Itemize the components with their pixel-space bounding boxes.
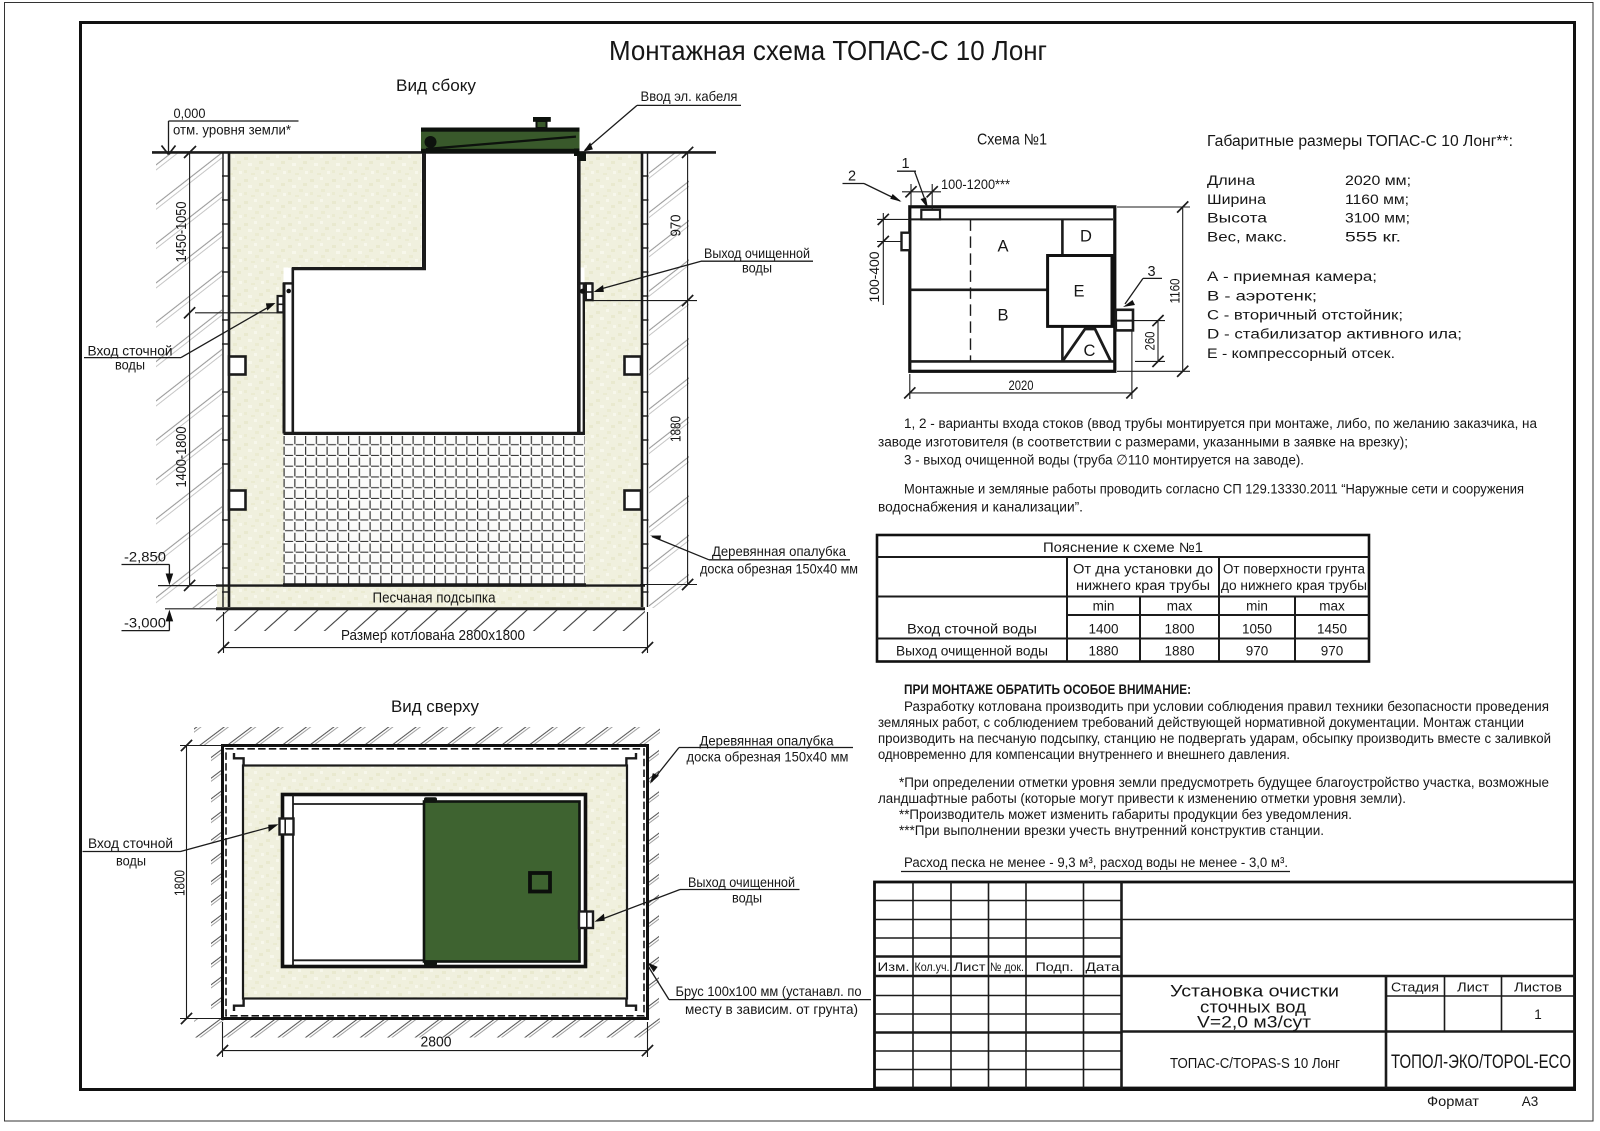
svg-text:доска обрезная 150х40 мм: доска обрезная 150х40 мм <box>687 749 849 765</box>
svg-text:В - аэротенк;: В - аэротенк; <box>1207 289 1317 305</box>
svg-text:1400-1800: 1400-1800 <box>174 427 190 488</box>
svg-text:Формат: Формат <box>1427 1094 1479 1109</box>
svg-text:E: E <box>1073 283 1084 301</box>
svg-text:min: min <box>1246 599 1268 614</box>
svg-text:2020: 2020 <box>1009 377 1034 393</box>
svg-text:ПРИ МОНТАЖЕ ОБРАТИТЬ ОСОБОЕ ВН: ПРИ МОНТАЖЕ ОБРАТИТЬ ОСОБОЕ ВНИМАНИЕ: <box>904 682 1191 698</box>
svg-text:воды: воды <box>116 853 146 869</box>
svg-text:0,000: 0,000 <box>174 106 206 121</box>
svg-text:Вид сбоку: Вид сбоку <box>396 77 477 95</box>
svg-text:Листов: Листов <box>1514 981 1562 995</box>
svg-text:водоснабжения и канализации”.: водоснабжения и канализации”. <box>878 500 1083 516</box>
svg-text:Ширина: Ширина <box>1207 192 1266 208</box>
svg-text:Расход песка не менее - 9,3 м³: Расход песка не менее - 9,3 м³, расход в… <box>904 855 1288 871</box>
svg-text:1, 2 - варианты входа стоков: 1, 2 - варианты входа стоков (ввод трубы… <box>904 416 1537 432</box>
svg-text:От поверхности грунта: От поверхности грунта <box>1223 562 1365 577</box>
svg-text:1160 мм;: 1160 мм; <box>1345 192 1409 208</box>
svg-text:2020 мм;: 2020 мм; <box>1345 173 1411 189</box>
svg-text:заводе изготовителя (в соответ: заводе изготовителя (в соответствии с ра… <box>878 435 1408 451</box>
svg-text:Деревянная опалубка: Деревянная опалубка <box>700 733 834 749</box>
svg-text:Лист: Лист <box>954 960 987 974</box>
svg-text:№ док.: № док. <box>990 960 1024 974</box>
svg-text:Изм.: Изм. <box>878 960 910 974</box>
svg-text:Пояснение к схеме №1: Пояснение к схеме №1 <box>1043 540 1203 555</box>
svg-text:1050: 1050 <box>1242 622 1272 637</box>
svg-text:1160: 1160 <box>1168 279 1183 304</box>
svg-text:max: max <box>1319 599 1345 614</box>
svg-text:970: 970 <box>1246 644 1269 659</box>
svg-text:Габаритные размеры ТОПАС-С 10: Габаритные размеры ТОПАС-С 10 Лонг**: <box>1207 133 1513 150</box>
svg-text:D: D <box>1080 228 1092 246</box>
svg-text:воды: воды <box>732 890 762 906</box>
svg-text:Ввод эл. кабеля: Ввод эл. кабеля <box>641 88 738 104</box>
svg-text:Лист: Лист <box>1457 981 1489 995</box>
svg-text:Вход сточной воды: Вход сточной воды <box>907 622 1037 637</box>
svg-text:Высота: Высота <box>1207 211 1267 227</box>
svg-text:100-1200***: 100-1200*** <box>941 177 1011 192</box>
svg-text:E - компрессорный отсек.: E - компрессорный отсек. <box>1207 346 1395 362</box>
svg-text:Песчаная подсыпка: Песчаная подсыпка <box>373 591 497 607</box>
svg-text:до нижнего края трубы: до нижнего края трубы <box>1221 578 1367 593</box>
svg-text:1800: 1800 <box>1164 622 1194 637</box>
svg-text:***При выполнении врезки учест: ***При выполнении врезки учесть внутренн… <box>899 823 1324 839</box>
svg-text:Монтажные и земляные работы пр: Монтажные и земляные работы проводить со… <box>904 482 1524 498</box>
svg-text:100-400: 100-400 <box>867 252 882 303</box>
svg-text:1880: 1880 <box>1088 644 1118 659</box>
svg-text:А - приемная камера;: А - приемная камера; <box>1207 269 1377 285</box>
svg-text:1450: 1450 <box>1317 622 1347 637</box>
svg-text:одновременно для компенсации в: одновременно для компенсации внутреннего… <box>878 747 1290 763</box>
svg-text:*При определении отметки уровн: *При определении отметки уровня земли пр… <box>899 775 1549 791</box>
svg-text:Вес, макс.: Вес, макс. <box>1207 230 1287 246</box>
svg-text:260: 260 <box>1143 332 1158 351</box>
svg-text:3: 3 <box>1147 264 1155 280</box>
svg-text:A: A <box>997 238 1008 256</box>
svg-text:max: max <box>1167 599 1193 614</box>
svg-text:Выход очищенной воды: Выход очищенной воды <box>896 644 1048 659</box>
svg-text:1: 1 <box>1534 1007 1542 1022</box>
svg-text:-3,000: -3,000 <box>124 616 166 631</box>
svg-text:воды: воды <box>115 357 145 373</box>
svg-text:производить на песчаную подсып: производить на песчаную подсыпку, станци… <box>878 731 1551 747</box>
svg-text:1: 1 <box>901 156 909 172</box>
svg-text:ландшафтные работы (которые мо: ландшафтные работы (которые могут привес… <box>878 791 1406 807</box>
svg-text:2800: 2800 <box>421 1034 452 1051</box>
svg-text:земляных работ, с соблюдением: земляных работ, с соблюдением требований… <box>878 715 1524 731</box>
svg-text:Брус 100х100 мм (устанавл. по: Брус 100х100 мм (устанавл. по <box>676 983 862 999</box>
svg-text:**Производитель может изменить: **Производитель может изменить габариты … <box>899 807 1352 823</box>
svg-text:1880: 1880 <box>669 416 685 442</box>
svg-text:С - вторичный отстойник;: С - вторичный отстойник; <box>1207 308 1403 324</box>
svg-text:Длина: Длина <box>1207 173 1255 189</box>
svg-text:min: min <box>1093 599 1115 614</box>
svg-text:1450-1050: 1450-1050 <box>174 202 190 263</box>
svg-text:970: 970 <box>1321 644 1344 659</box>
svg-text:Дата: Дата <box>1086 960 1120 974</box>
svg-text:Стадия: Стадия <box>1391 981 1439 995</box>
svg-text:970: 970 <box>669 215 685 237</box>
svg-text:V=2,0 м3/сут: V=2,0 м3/сут <box>1197 1014 1312 1032</box>
svg-text:1800: 1800 <box>172 870 189 896</box>
svg-text:нижнего края трубы: нижнего края трубы <box>1076 578 1210 593</box>
svg-text:Подп.: Подп. <box>1036 960 1074 974</box>
svg-text:Деревянная опалубка: Деревянная опалубка <box>712 543 846 559</box>
svg-text:Вход сточной: Вход сточной <box>88 835 173 851</box>
svg-text:ТОПАС-С/TOPAS-S 10 Лонг: ТОПАС-С/TOPAS-S 10 Лонг <box>1170 1056 1340 1072</box>
svg-text:воды: воды <box>742 260 772 276</box>
svg-text:1880: 1880 <box>1164 644 1194 659</box>
svg-text:От дна установки до: От дна установки до <box>1073 562 1213 577</box>
svg-text:Размер котлована 2800х1800: Размер котлована 2800х1800 <box>341 627 525 644</box>
svg-text:Кол.уч.: Кол.уч. <box>915 960 950 974</box>
svg-text:Выход очищенной: Выход очищенной <box>688 874 795 890</box>
svg-text:B: B <box>997 307 1008 325</box>
svg-text:2: 2 <box>848 169 856 185</box>
svg-text:ТОПОЛ-ЭКО/TOPOL-ECO: ТОПОЛ-ЭКО/TOPOL-ECO <box>1391 1052 1571 1073</box>
svg-text:месту в зависим. от грунта): месту в зависим. от грунта) <box>685 1001 858 1017</box>
svg-text:Разработку котлована производи: Разработку котлована производить при усл… <box>904 699 1549 715</box>
svg-text:3100 мм;: 3100 мм; <box>1345 211 1410 227</box>
svg-text:доска обрезная 150х40 мм: доска обрезная 150х40 мм <box>700 561 858 577</box>
svg-text:555 кг.: 555 кг. <box>1345 230 1401 246</box>
svg-text:отм. уровня земли*: отм. уровня земли* <box>173 123 292 138</box>
svg-text:Монтажная схема ТОПАС-С 10 Лон: Монтажная схема ТОПАС-С 10 Лонг <box>609 35 1047 66</box>
svg-text:А3: А3 <box>1522 1094 1539 1109</box>
svg-text:Схема №1: Схема №1 <box>977 132 1047 149</box>
svg-text:C: C <box>1084 342 1096 360</box>
svg-text:-2,850: -2,850 <box>124 550 166 565</box>
svg-text:Вид сверху: Вид сверху <box>391 698 480 716</box>
svg-text:3 - выход очищенной воды (труб: 3 - выход очищенной воды (труба ∅110 мон… <box>904 453 1304 469</box>
svg-text:D - стабилизатор активного ила: D - стабилизатор активного ила; <box>1207 327 1462 343</box>
svg-text:1400: 1400 <box>1088 622 1118 637</box>
